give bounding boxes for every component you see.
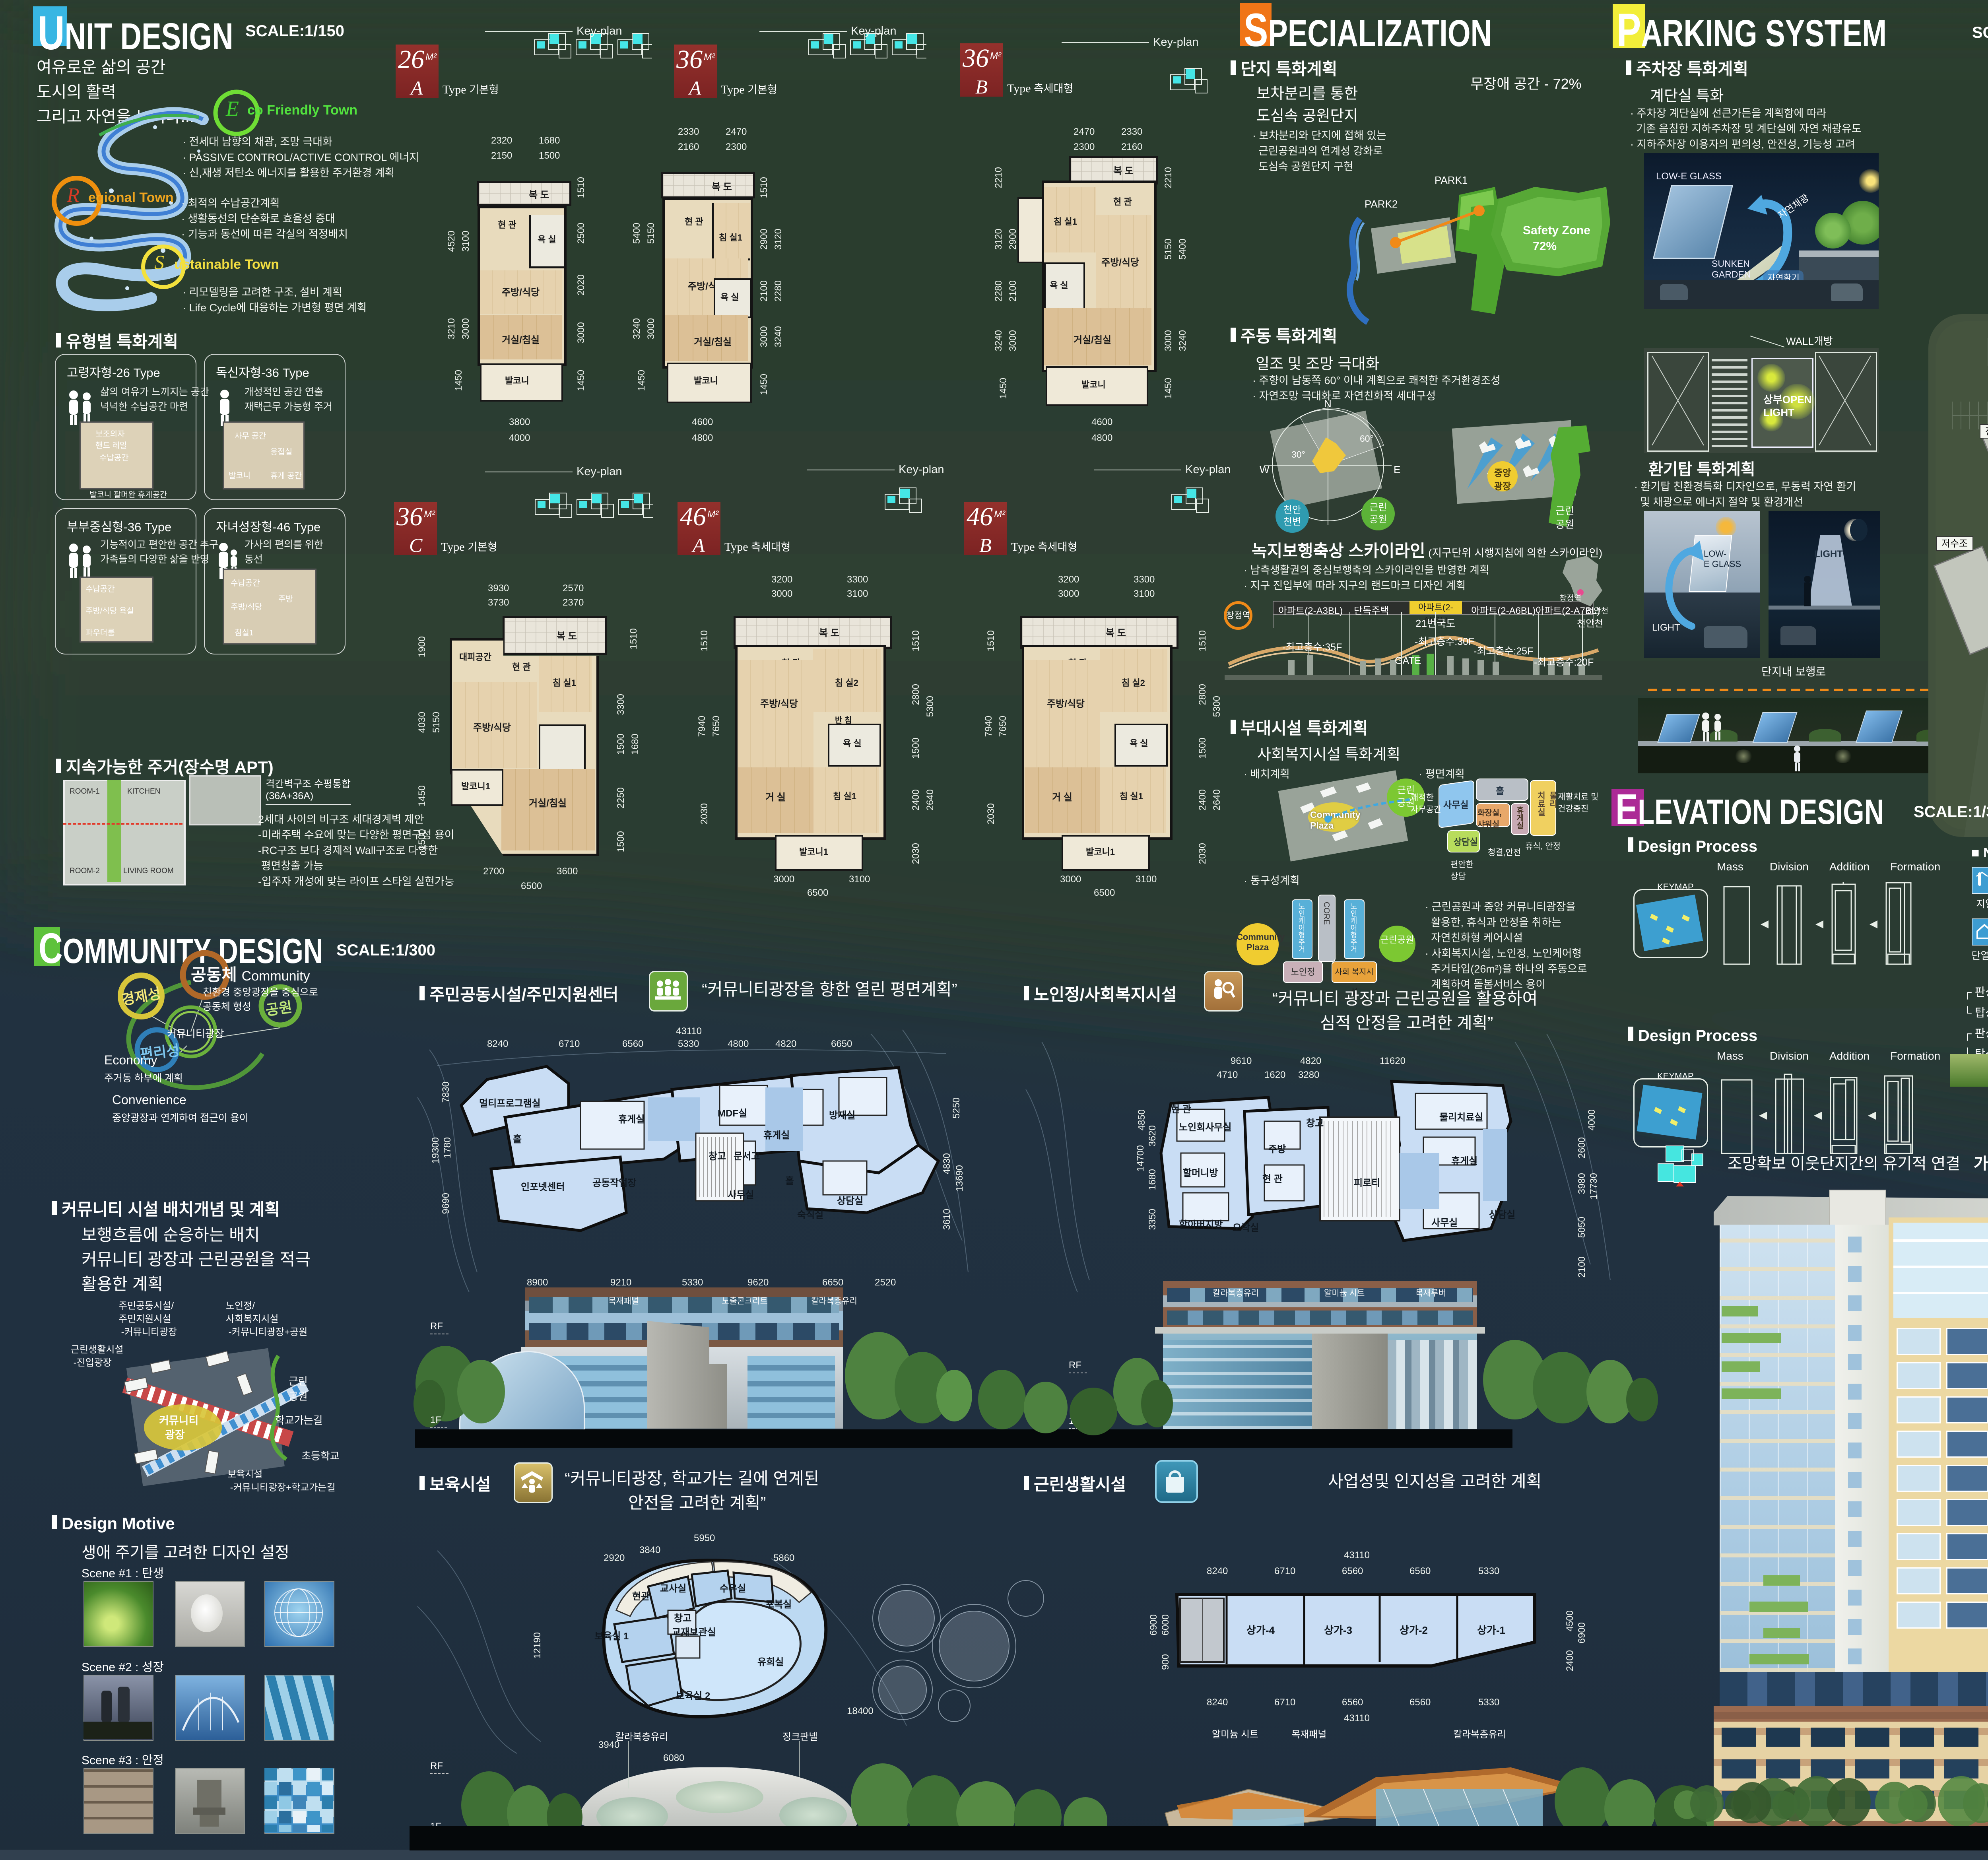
- svg-text:저수조: 저수조: [1941, 538, 1968, 549]
- svg-text:전기실: 전기실: [1985, 426, 1988, 437]
